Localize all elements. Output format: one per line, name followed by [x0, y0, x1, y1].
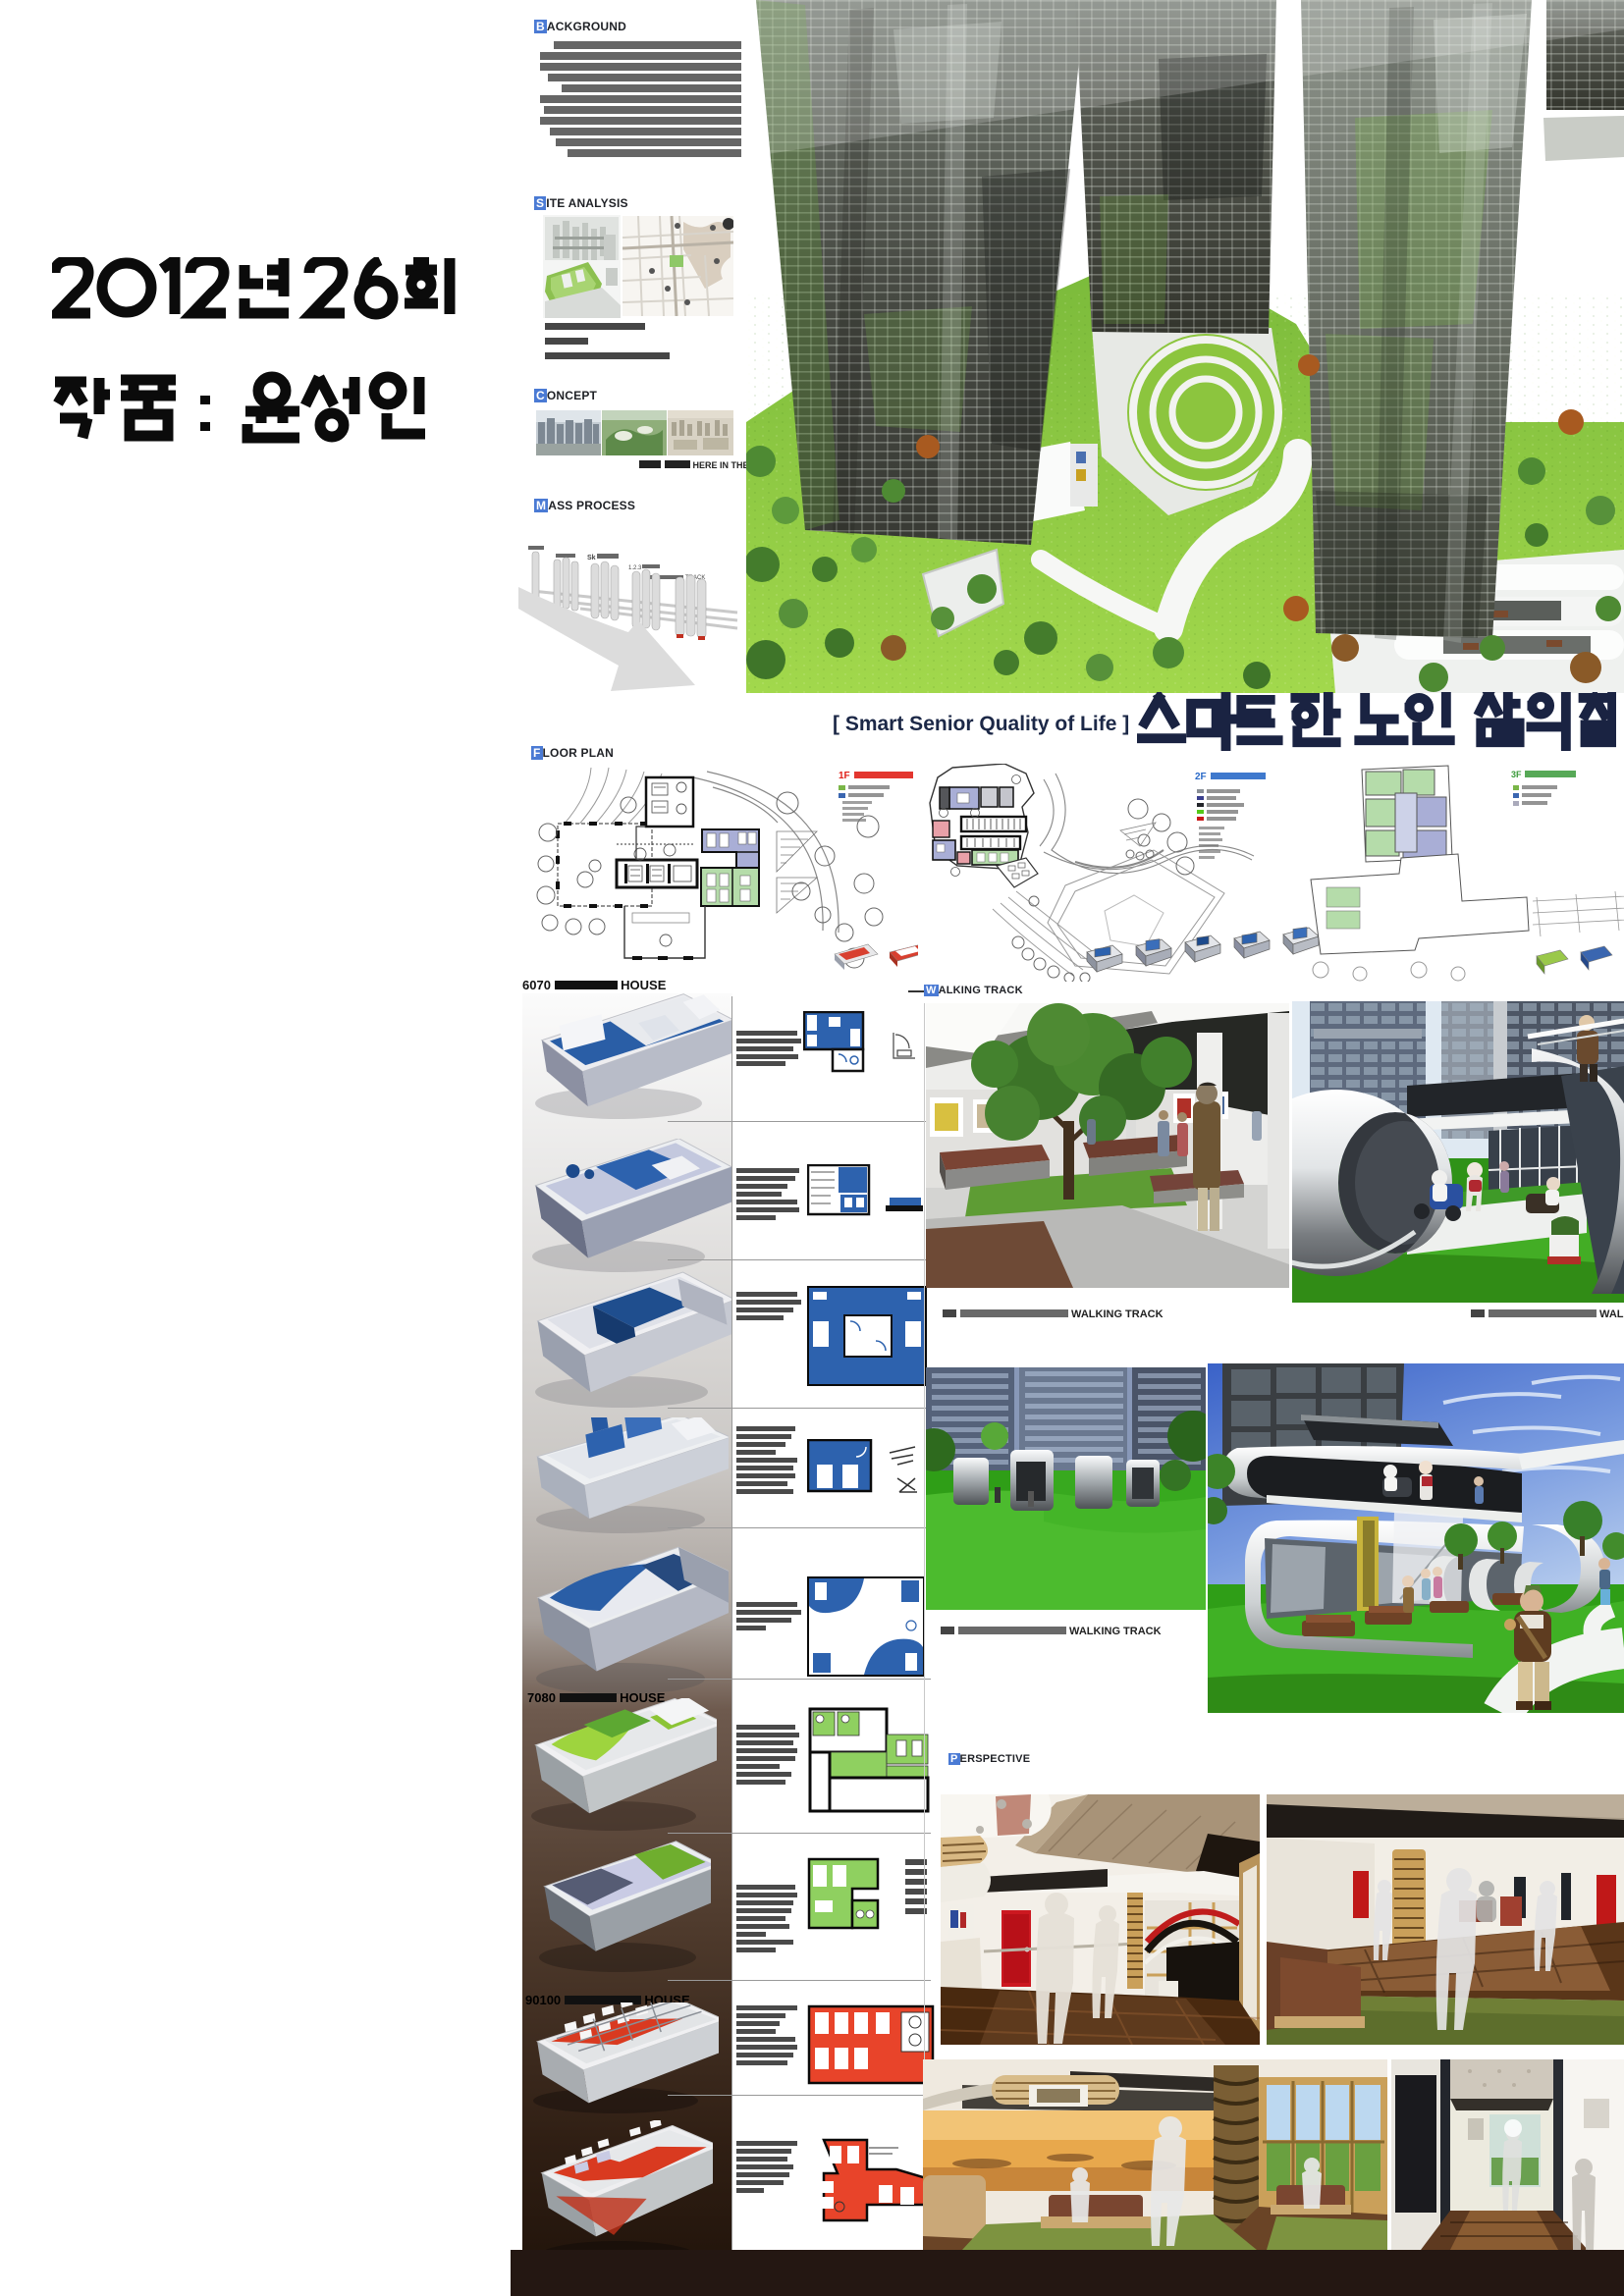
svg-text:1.2.3: 1.2.3	[628, 565, 642, 571]
svg-text:1F: 1F	[839, 771, 850, 781]
svg-text:3F: 3F	[1511, 770, 1522, 779]
svg-text:2F: 2F	[1195, 772, 1207, 782]
svg-text:Sk: Sk	[587, 555, 596, 561]
